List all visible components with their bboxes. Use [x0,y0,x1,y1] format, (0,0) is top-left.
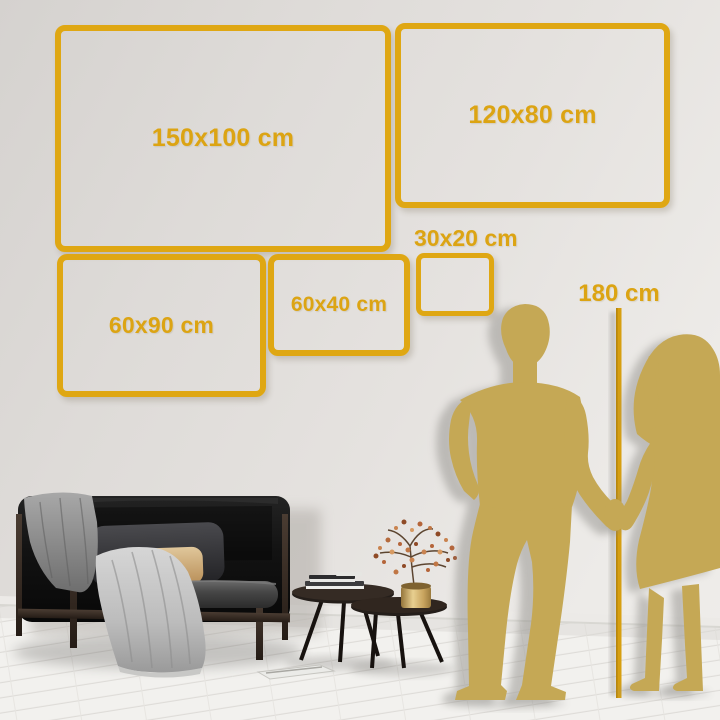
sofa-frame-post [16,514,22,636]
size-frame-150x100: 150x100 cm [55,25,391,252]
size-guide-mockup: 150x100 cm 120x80 cm 60x90 cm 60x40 cm 3… [0,0,720,720]
height-marker-label: 180 cm [569,280,669,308]
size-label-150x100: 150x100 cm [152,124,294,153]
size-frame-120x80: 120x80 cm [395,23,670,208]
size-frame-30x20 [416,253,494,316]
size-label-60x90: 60x90 cm [109,312,214,339]
size-frame-60x90: 60x90 cm [57,254,266,397]
size-label-60x40: 60x40 cm [291,293,387,317]
size-frame-60x40: 60x40 cm [268,254,410,356]
size-label-30x20: 30x20 cm [414,225,518,252]
size-label-120x80: 120x80 cm [468,101,596,130]
branch [380,529,448,585]
